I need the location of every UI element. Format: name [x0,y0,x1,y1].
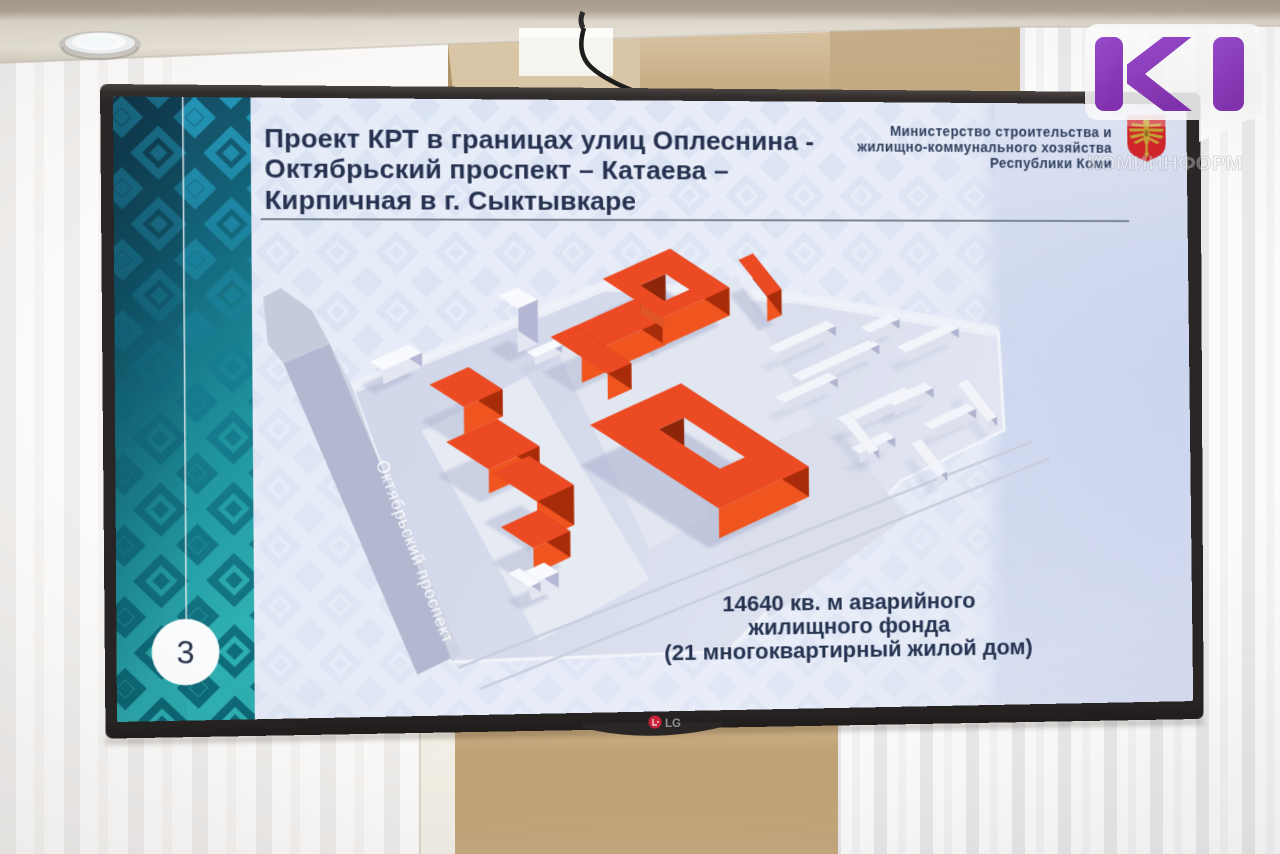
svg-text:КОМИИНФОРМ: КОМИИНФОРМ [1087,152,1243,175]
svg-text:LG: LG [665,718,681,730]
